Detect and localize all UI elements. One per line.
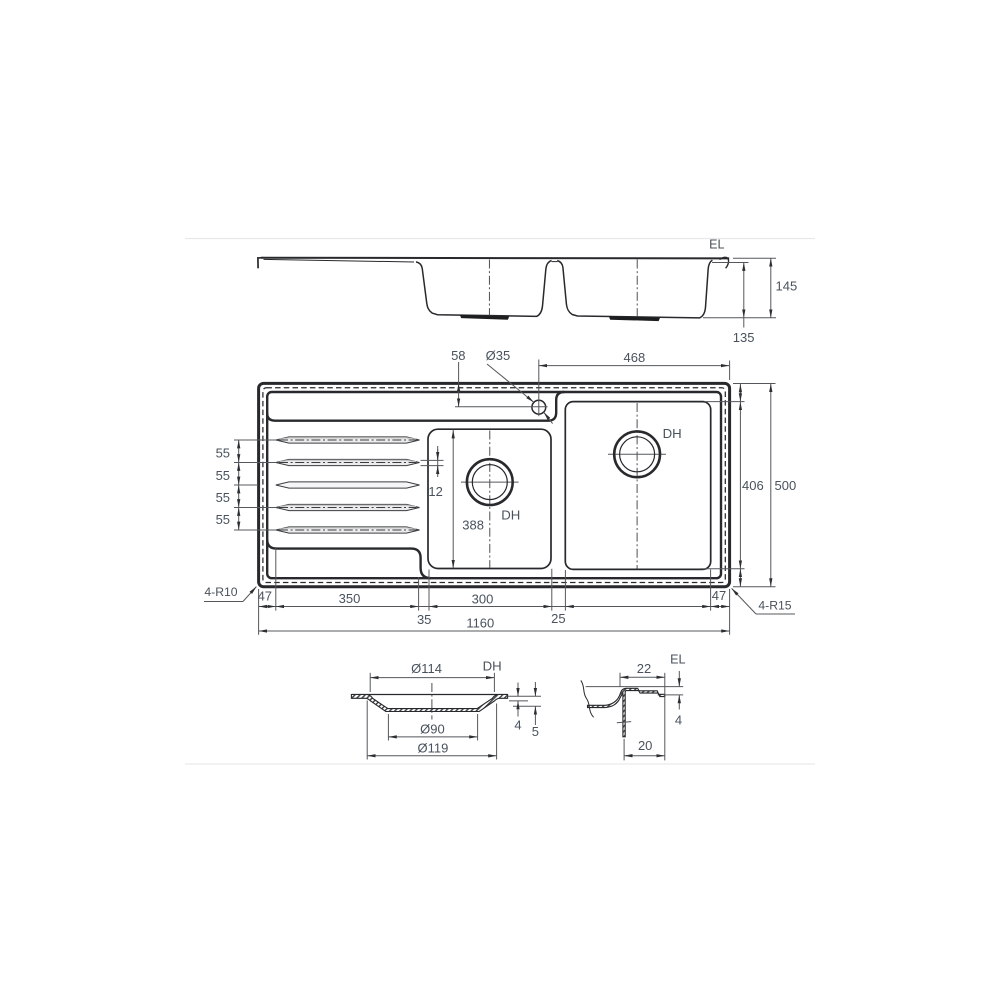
svg-text:47: 47 xyxy=(258,589,272,604)
svg-text:145: 145 xyxy=(776,279,798,294)
svg-text:4-R10: 4-R10 xyxy=(204,585,237,599)
svg-text:5: 5 xyxy=(532,724,539,739)
svg-text:500: 500 xyxy=(775,478,797,493)
svg-text:35: 35 xyxy=(417,612,431,627)
svg-text:EL: EL xyxy=(670,653,685,667)
svg-text:388: 388 xyxy=(462,518,484,533)
svg-text:47: 47 xyxy=(712,588,726,603)
svg-text:DH: DH xyxy=(663,426,682,441)
svg-text:468: 468 xyxy=(624,350,646,365)
svg-text:Ø119: Ø119 xyxy=(417,740,448,755)
svg-text:EL: EL xyxy=(709,238,724,252)
svg-text:DH: DH xyxy=(501,507,520,522)
svg-text:25: 25 xyxy=(551,611,565,626)
svg-text:58: 58 xyxy=(451,348,465,363)
svg-text:DH: DH xyxy=(483,659,502,674)
svg-text:12: 12 xyxy=(428,484,442,499)
svg-text:406: 406 xyxy=(742,478,764,493)
svg-text:Ø90: Ø90 xyxy=(420,722,445,737)
svg-text:4: 4 xyxy=(514,717,521,732)
svg-text:20: 20 xyxy=(638,738,652,753)
svg-text:55: 55 xyxy=(216,446,230,461)
svg-text:4-R15: 4-R15 xyxy=(758,599,791,613)
svg-text:55: 55 xyxy=(216,512,230,527)
svg-text:1160: 1160 xyxy=(466,616,494,631)
svg-text:135: 135 xyxy=(733,330,755,345)
svg-text:4: 4 xyxy=(675,712,682,727)
svg-text:55: 55 xyxy=(216,490,230,505)
svg-text:Ø114: Ø114 xyxy=(411,661,442,676)
svg-text:350: 350 xyxy=(339,591,361,606)
svg-text:300: 300 xyxy=(472,592,494,607)
svg-text:55: 55 xyxy=(216,468,230,483)
svg-text:22: 22 xyxy=(637,661,651,676)
svg-text:Ø35: Ø35 xyxy=(486,348,511,363)
